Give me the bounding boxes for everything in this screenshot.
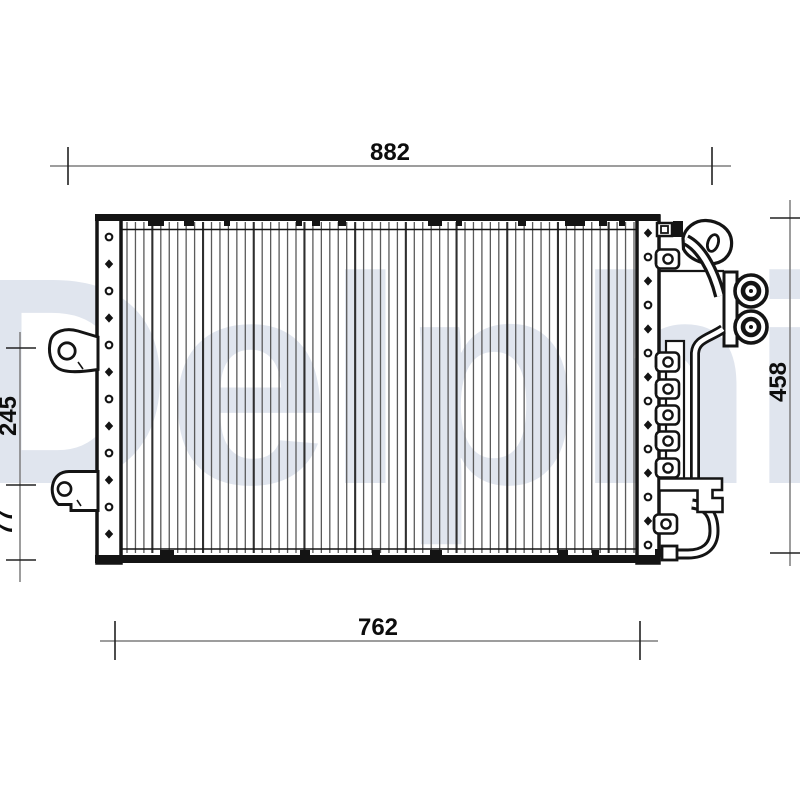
mounting-bracket-upper-left bbox=[49, 330, 98, 372]
weld-dot-circle bbox=[106, 342, 113, 349]
fitting-bolt bbox=[656, 432, 679, 451]
weld-dot-circle bbox=[645, 302, 652, 309]
weld-dot-circle bbox=[645, 254, 652, 261]
weld-dot-circle bbox=[106, 450, 113, 457]
weld-dot-circle bbox=[106, 396, 113, 403]
dimension-top-width-label: 882 bbox=[370, 139, 410, 166]
weld-dot-circle bbox=[106, 234, 113, 241]
refrigerant-port-lower bbox=[735, 311, 767, 343]
fitting-bolt bbox=[656, 406, 679, 425]
refrigerant-port-upper bbox=[735, 275, 767, 307]
fitting-bolt bbox=[656, 459, 679, 478]
dimension-top-width: 882 bbox=[50, 139, 731, 185]
bracket-hole bbox=[59, 343, 75, 359]
dimension-bottom-width-label: 762 bbox=[358, 614, 398, 641]
weld-dot-circle bbox=[106, 288, 113, 295]
core-top-border bbox=[95, 214, 660, 221]
core-bottom-border bbox=[95, 555, 660, 563]
condenser-technical-drawing: Delphi bbox=[0, 0, 800, 800]
dimension-right-height-label: 458 bbox=[765, 362, 792, 402]
fitting-bolt bbox=[656, 353, 679, 372]
pipe-stub-fitting bbox=[657, 223, 672, 236]
weld-dot-circle bbox=[645, 446, 652, 453]
dimension-bottom-width: 762 bbox=[100, 614, 658, 660]
weld-dot-circle bbox=[645, 398, 652, 405]
weld-dot-circle bbox=[645, 542, 652, 549]
fitting-bolt bbox=[656, 380, 679, 399]
drawing-svg: Delphi bbox=[0, 0, 800, 800]
fitting-bolt bbox=[656, 250, 679, 269]
condenser-core-fins bbox=[127, 222, 634, 553]
bracket-hole bbox=[58, 482, 71, 495]
dimension-left-upper-label: 245 bbox=[0, 396, 22, 436]
dimension-left-lower-label: 77 bbox=[0, 509, 18, 536]
fitting-bolt bbox=[654, 515, 677, 534]
mounting-bracket-lower-left bbox=[52, 472, 98, 511]
weld-dot-circle bbox=[645, 494, 652, 501]
weld-dot-circle bbox=[106, 504, 113, 511]
pipe-end-fitting bbox=[662, 546, 677, 560]
pipe-block bbox=[673, 221, 683, 237]
weld-dot-circle bbox=[645, 350, 652, 357]
